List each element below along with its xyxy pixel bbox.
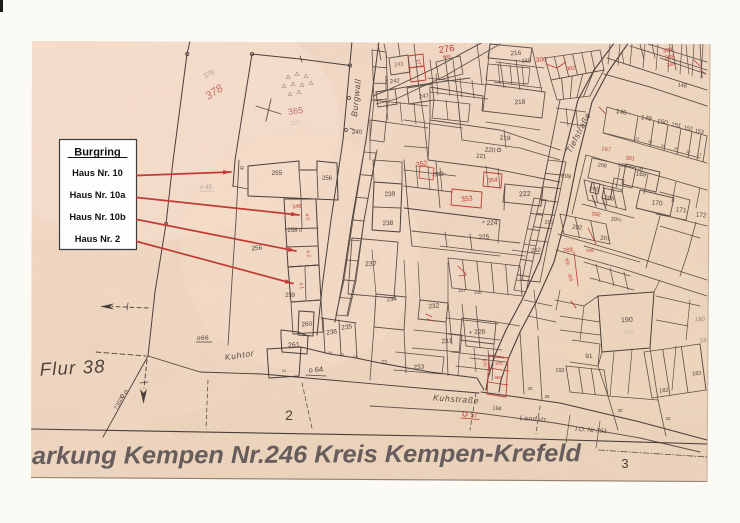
svg-text:Haus Nr. 10: Haus Nr. 10 <box>72 168 123 178</box>
svg-text:57: 57 <box>470 412 478 420</box>
svg-text:234: 234 <box>387 297 398 304</box>
svg-text:Flur 38: Flur 38 <box>39 355 106 379</box>
svg-text:o66: o66 <box>197 335 209 342</box>
svg-text:Haus Nr. 10a: Haus Nr. 10a <box>70 190 127 200</box>
svg-text:365: 365 <box>287 105 303 117</box>
svg-text:182: 182 <box>659 388 669 395</box>
svg-text:148: 148 <box>677 82 687 89</box>
svg-text:183: 183 <box>692 371 702 378</box>
svg-text:354: 354 <box>488 177 499 184</box>
svg-text:369: 369 <box>494 375 502 380</box>
svg-text:4 1: 4 1 <box>297 282 304 290</box>
svg-text:180: 180 <box>695 317 706 324</box>
svg-text:190: 190 <box>621 317 633 325</box>
svg-text:233: 233 <box>413 364 425 372</box>
svg-text:221: 221 <box>476 154 487 161</box>
svg-text:255: 255 <box>272 170 283 177</box>
svg-text:260: 260 <box>301 321 313 329</box>
svg-text:240: 240 <box>352 130 363 136</box>
svg-text:348: 348 <box>292 204 302 211</box>
svg-text:172: 172 <box>695 211 707 219</box>
svg-text:192: 192 <box>555 368 564 374</box>
svg-text:346: 346 <box>666 61 675 68</box>
svg-text:o 64: o 64 <box>308 365 323 375</box>
svg-text:222: 222 <box>519 191 531 199</box>
svg-text:20: 20 <box>527 386 533 391</box>
svg-text:Burgring: Burgring <box>74 147 120 159</box>
svg-text:305: 305 <box>290 121 301 128</box>
svg-text:170: 170 <box>651 199 663 207</box>
svg-text:Haus Nr. 10b: Haus Nr. 10b <box>69 212 126 222</box>
svg-text:171: 171 <box>675 206 687 214</box>
svg-text:4 0: 4 0 <box>303 213 310 221</box>
svg-text:210: 210 <box>474 290 482 295</box>
svg-text:160: 160 <box>623 330 634 337</box>
svg-text:256: 256 <box>251 245 263 253</box>
svg-text:91: 91 <box>585 353 593 360</box>
svg-text:194: 194 <box>492 406 502 413</box>
svg-text:227: 227 <box>458 288 466 293</box>
svg-text:30: 30 <box>617 408 623 413</box>
svg-text:216: 216 <box>510 50 522 58</box>
svg-text:238: 238 <box>382 220 394 228</box>
svg-text:25: 25 <box>544 394 550 399</box>
svg-text:23: 23 <box>381 360 387 366</box>
svg-text:o 45: o 45 <box>200 185 212 191</box>
svg-text:258 n: 258 n <box>287 228 302 234</box>
svg-text:R: R <box>240 166 244 172</box>
svg-text:4 2: 4 2 <box>304 250 311 258</box>
svg-text:220: 220 <box>484 147 496 155</box>
svg-text:208: 208 <box>597 162 607 169</box>
svg-text:232: 232 <box>428 303 440 311</box>
svg-text:353: 353 <box>461 195 473 203</box>
svg-text:225: 225 <box>478 234 490 242</box>
svg-text:239: 239 <box>384 191 396 199</box>
svg-text:218: 218 <box>514 99 525 106</box>
svg-text:2: 2 <box>285 407 293 423</box>
svg-text:20¼: 20¼ <box>610 216 622 223</box>
svg-text:3: 3 <box>621 456 628 471</box>
svg-text:261: 261 <box>288 342 300 350</box>
svg-text:169: 169 <box>635 170 647 178</box>
svg-text:249: 249 <box>522 58 532 65</box>
svg-text:arkung Kempen Nr.246 Kreis Kem: arkung Kempen Nr.246 Kreis Kempen-Krefel… <box>32 440 582 470</box>
svg-text:33: 33 <box>665 416 671 421</box>
svg-text:259: 259 <box>285 293 296 299</box>
svg-text:10: 10 <box>282 368 287 373</box>
svg-text:392: 392 <box>591 212 601 219</box>
svg-text:+ 228: + 228 <box>468 328 485 336</box>
svg-text:237: 237 <box>365 261 377 269</box>
svg-text:243: 243 <box>394 62 404 69</box>
svg-text:* 224: * 224 <box>482 220 498 228</box>
svg-text:256: 256 <box>322 176 333 182</box>
svg-text:301: 301 <box>625 155 635 162</box>
svg-text:Haus Nr. 2: Haus Nr. 2 <box>75 234 120 244</box>
